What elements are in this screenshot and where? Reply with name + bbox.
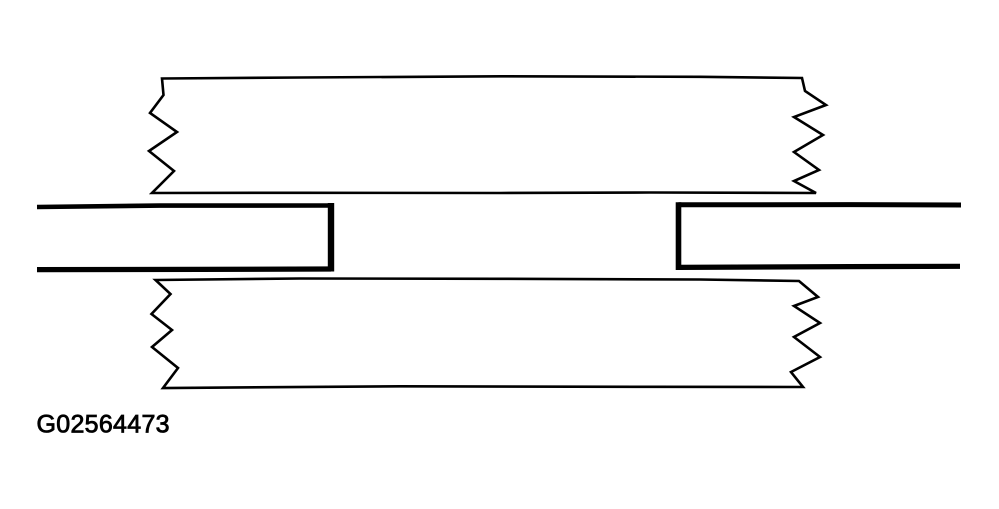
svg-text:G02564473: G02564473 bbox=[37, 411, 170, 439]
